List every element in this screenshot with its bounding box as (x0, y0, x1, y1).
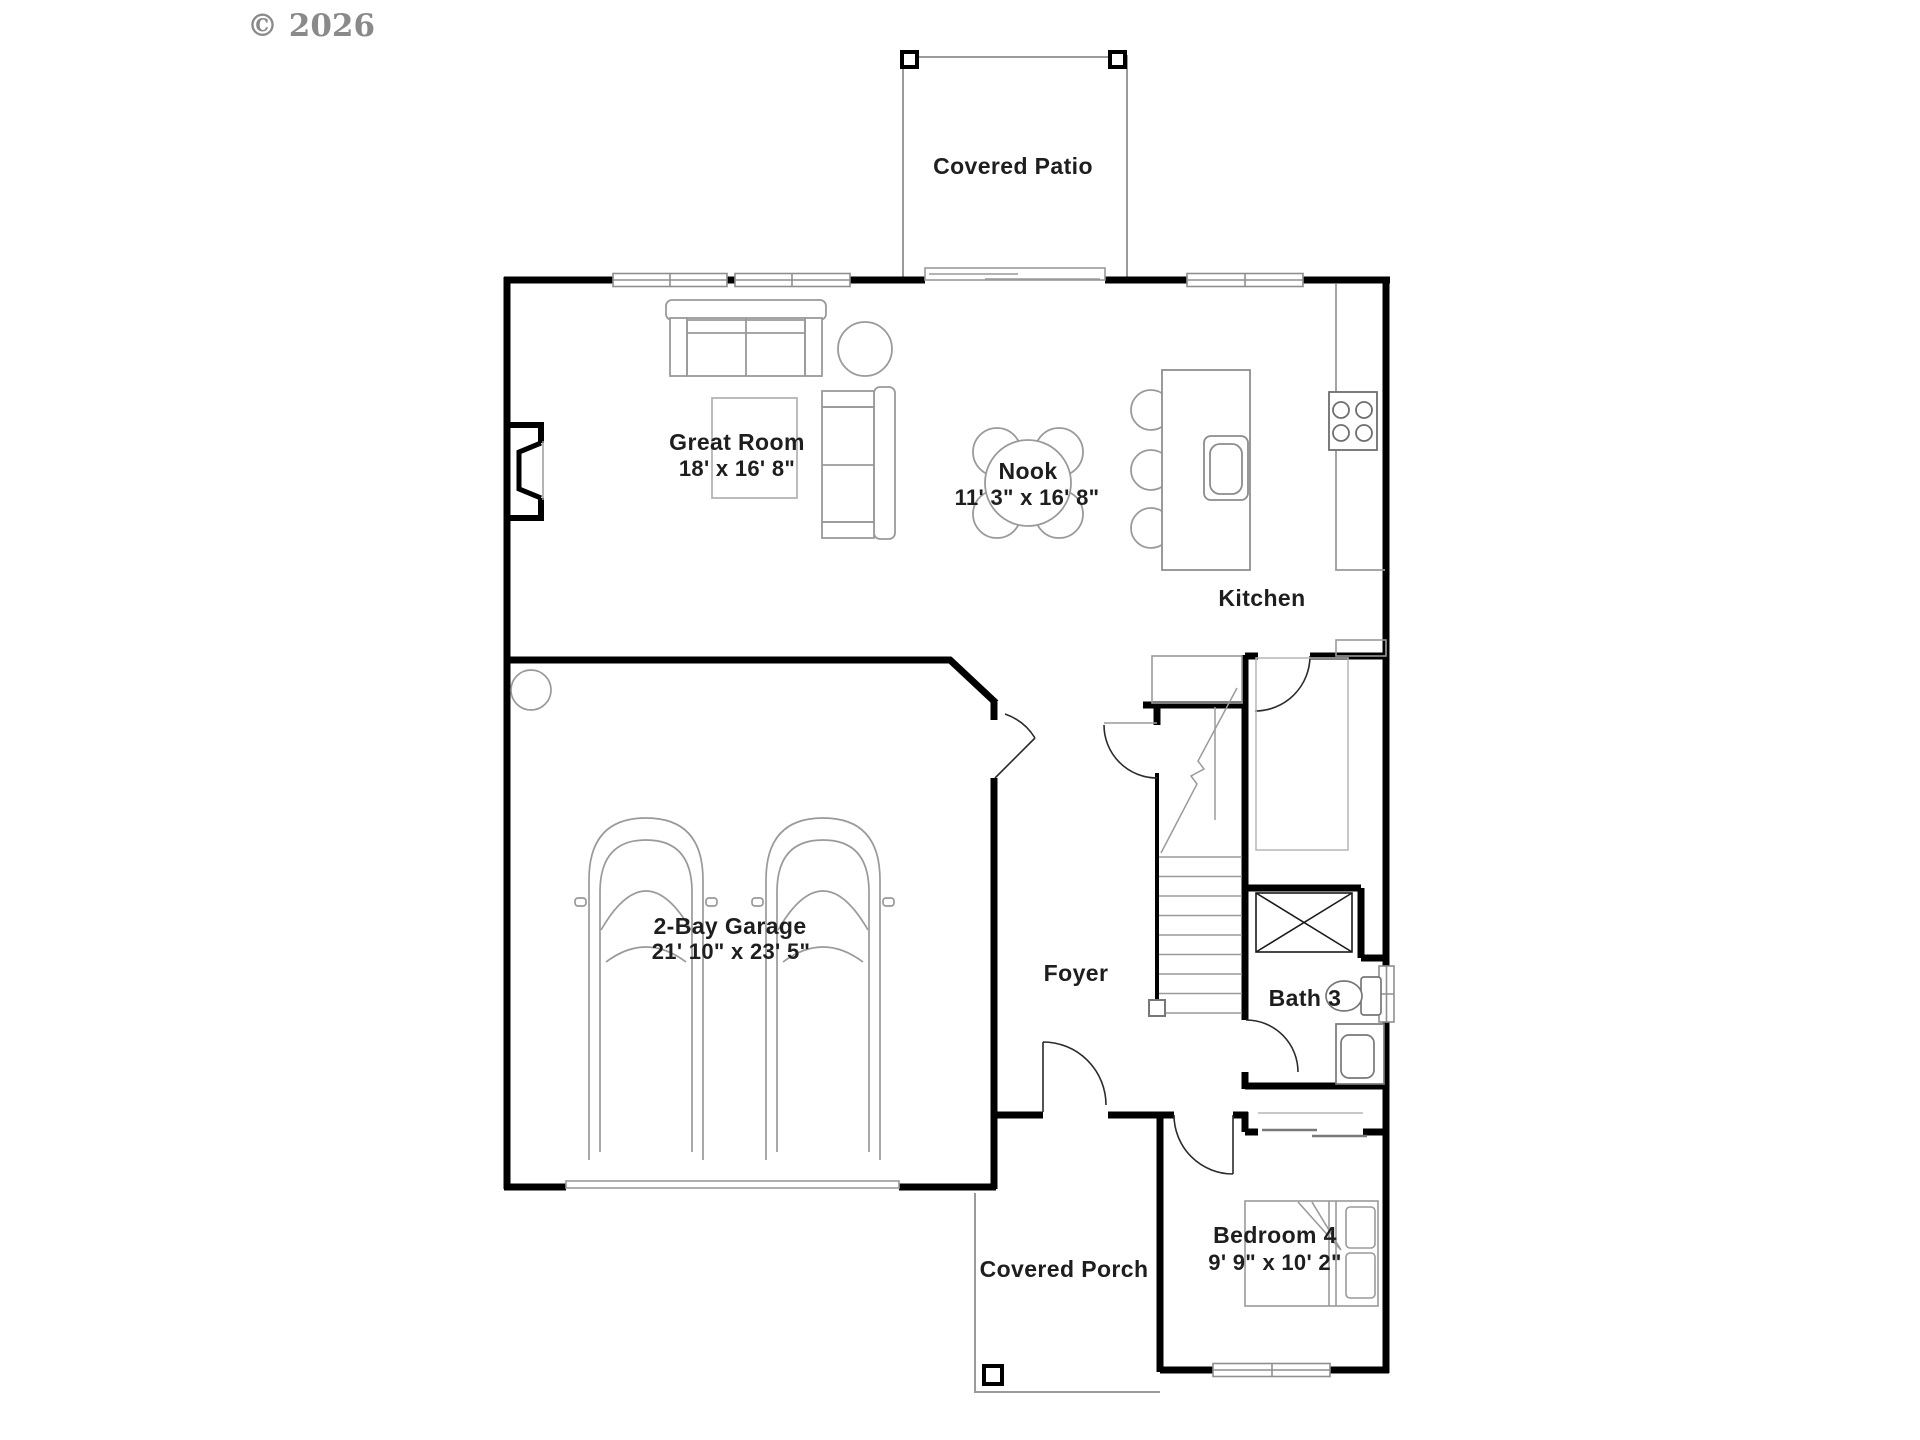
floor-plan-svg: © 2026 Covered Patio Great Room 18' x 16… (0, 0, 1920, 1440)
patio-post-left (902, 52, 917, 67)
front-door (1043, 1042, 1106, 1112)
floor-plan-page: © 2026 Covered Patio Great Room 18' x 16… (0, 0, 1920, 1440)
label-foyer: Foyer (1044, 960, 1109, 986)
watermark-text: © 2026 (247, 8, 375, 44)
great-room-window-2 (735, 274, 850, 287)
dims-garage: 21' 10" x 23' 5" (652, 939, 810, 964)
label-nook: Nook (998, 458, 1057, 484)
kitchen-fixtures (1131, 284, 1386, 850)
understair-door (1104, 723, 1157, 778)
bedroom-window (1213, 1364, 1330, 1377)
label-kitchen: Kitchen (1218, 585, 1305, 611)
patio-posts (902, 52, 1125, 67)
garage-entry-door (995, 714, 1035, 778)
loveseat (822, 387, 895, 539)
car (575, 818, 717, 1160)
stair-newel (1149, 1000, 1165, 1016)
bedroom-door (1174, 1115, 1233, 1174)
exterior-walls (504, 277, 1390, 1373)
kitchen-island (1162, 370, 1250, 570)
staircase (1149, 688, 1242, 1016)
sofa (666, 300, 826, 376)
label-covered-porch: Covered Porch (980, 1256, 1149, 1282)
label-covered-patio: Covered Patio (933, 153, 1093, 179)
pantry-door (1255, 656, 1310, 711)
label-great-room: Great Room (669, 429, 805, 455)
bedroom4-furniture (1245, 1113, 1378, 1306)
fireplace (507, 425, 543, 518)
linen-closet (1256, 893, 1352, 952)
cooktop (1329, 392, 1377, 450)
sliding-patio-door (925, 268, 1105, 280)
great-room-furniture (666, 300, 895, 539)
covered-porch-outline (974, 1193, 1160, 1392)
patio-post-right (1110, 52, 1125, 67)
dims-bedroom4: 9' 9" x 10' 2" (1208, 1250, 1341, 1275)
garage-door (566, 1181, 899, 1188)
dims-great-room: 18' x 16' 8" (679, 456, 795, 481)
label-garage: 2-Bay Garage (653, 913, 806, 939)
great-room-window-1 (613, 274, 727, 287)
kitchen-window (1187, 274, 1303, 287)
label-bath3: Bath 3 (1269, 985, 1342, 1011)
pantry-shelf (1256, 658, 1348, 850)
refrigerator (1152, 656, 1242, 703)
dims-nook: 11' 3" x 16' 8" (955, 485, 1100, 510)
label-bedroom4: Bedroom 4 (1213, 1222, 1337, 1248)
car (752, 818, 894, 1160)
doors (995, 656, 1310, 1174)
bath-vanity (1336, 1024, 1384, 1084)
stair-break-line (1161, 688, 1237, 853)
porch-post (984, 1366, 1002, 1384)
water-heater (511, 670, 551, 710)
bath-door (1246, 1020, 1298, 1072)
round-chair (838, 322, 892, 376)
closet-sliding-doors (1258, 1113, 1367, 1136)
